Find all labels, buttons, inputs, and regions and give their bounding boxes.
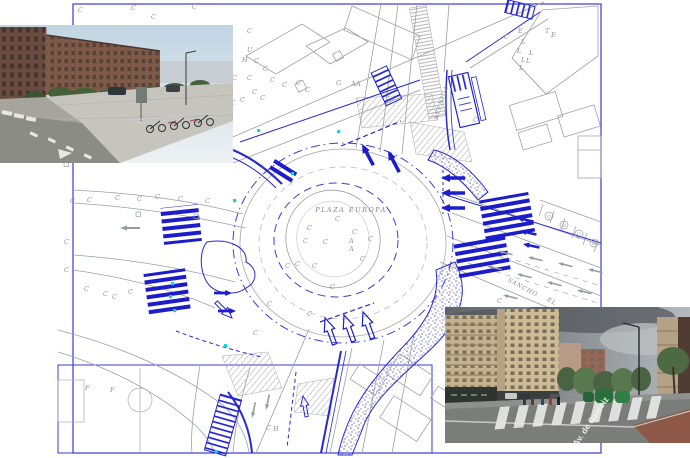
svg-text:C: C <box>323 238 328 246</box>
svg-text:H: H <box>272 425 279 433</box>
svg-text:C: C <box>307 224 312 232</box>
svg-text:C: C <box>252 88 257 96</box>
svg-text:F: F <box>109 386 115 394</box>
svg-text:O: O <box>547 214 551 220</box>
svg-text:C: C <box>312 262 317 270</box>
sancho-el-label: EL <box>545 296 558 307</box>
svg-text:C: C <box>260 94 265 102</box>
svg-text:C: C <box>267 300 272 308</box>
svg-text:C: C <box>295 260 300 268</box>
svg-text:C: C <box>360 255 365 263</box>
svg-text:H: H <box>562 223 566 229</box>
svg-text:A: A <box>348 237 354 245</box>
svg-text:G: G <box>336 79 341 87</box>
svg-text:C: C <box>137 195 142 203</box>
svg-text:L: L <box>520 56 525 64</box>
plaza-europa-label: PLAZA EUROPA <box>314 206 387 214</box>
svg-text:C: C <box>303 237 308 245</box>
svg-text:C: C <box>112 293 117 301</box>
svg-text:C: C <box>247 27 252 35</box>
svg-text:L: L <box>525 57 530 65</box>
svg-text:C: C <box>270 76 275 84</box>
svg-text:C: C <box>115 194 120 202</box>
svg-text:C: C <box>64 238 69 246</box>
svg-text:C: C <box>178 195 183 203</box>
svg-text:C: C <box>305 86 310 94</box>
roundabout <box>233 143 453 343</box>
svg-text:E: E <box>550 31 556 39</box>
svg-text:C: C <box>307 310 312 318</box>
svg-text:A: A <box>348 245 354 253</box>
street-photo-bottom-right: Av. de Gasteiz <box>445 307 690 443</box>
svg-text:C: C <box>330 283 335 291</box>
soccer-field <box>58 368 152 452</box>
svg-text:C: C <box>103 290 108 298</box>
svg-text:L: L <box>516 47 521 55</box>
svg-text:C: C <box>192 3 197 11</box>
svg-text:H: H <box>592 241 596 247</box>
svg-text:C: C <box>263 65 268 73</box>
svg-text:C: C <box>497 297 502 305</box>
svg-text:U: U <box>247 46 253 54</box>
svg-text:L: L <box>520 38 525 46</box>
svg-text:C: C <box>131 4 136 12</box>
tree-symbols: OHOH <box>545 212 598 247</box>
svg-text:C: C <box>335 215 340 223</box>
svg-text:T: T <box>545 27 550 35</box>
street-photo-top-left <box>0 25 233 163</box>
svg-text:C: C <box>70 197 75 205</box>
svg-text:C: C <box>352 228 357 236</box>
svg-text:C: C <box>296 79 301 87</box>
svg-text:H: H <box>241 56 248 64</box>
screenshot-canvas: CCCCCCCCCCCCCCCCCCUHCCCCCCCCCCCCCGAACETE… <box>0 0 690 458</box>
svg-text:C: C <box>240 96 245 104</box>
svg-text:O: O <box>577 232 581 238</box>
svg-text:C: C <box>253 329 258 337</box>
svg-text:A: A <box>355 80 361 88</box>
svg-text:C: C <box>254 57 259 65</box>
svg-text:C: C <box>282 81 287 89</box>
svg-text:C: C <box>87 196 92 204</box>
parking-ticks <box>539 204 598 252</box>
svg-text:L: L <box>518 64 523 72</box>
svg-text:C: C <box>368 235 373 243</box>
svg-text:C: C <box>247 74 252 82</box>
svg-text:C: C <box>155 193 160 201</box>
svg-text:L: L <box>528 49 533 57</box>
svg-text:C: C <box>151 13 156 21</box>
svg-text:C: C <box>84 285 89 293</box>
svg-text:C: C <box>78 6 83 14</box>
svg-text:C: C <box>128 288 133 296</box>
svg-text:C: C <box>64 266 69 274</box>
svg-text:E: E <box>517 27 523 35</box>
svg-text:C: C <box>266 424 271 432</box>
svg-text:C: C <box>473 116 478 124</box>
svg-text:C: C <box>504 33 509 41</box>
svg-text:C: C <box>205 197 210 205</box>
svg-text:F: F <box>84 384 90 392</box>
bus-bay <box>448 71 486 128</box>
sancho-label: SANCHO <box>506 277 539 299</box>
svg-text:C: C <box>285 262 290 270</box>
